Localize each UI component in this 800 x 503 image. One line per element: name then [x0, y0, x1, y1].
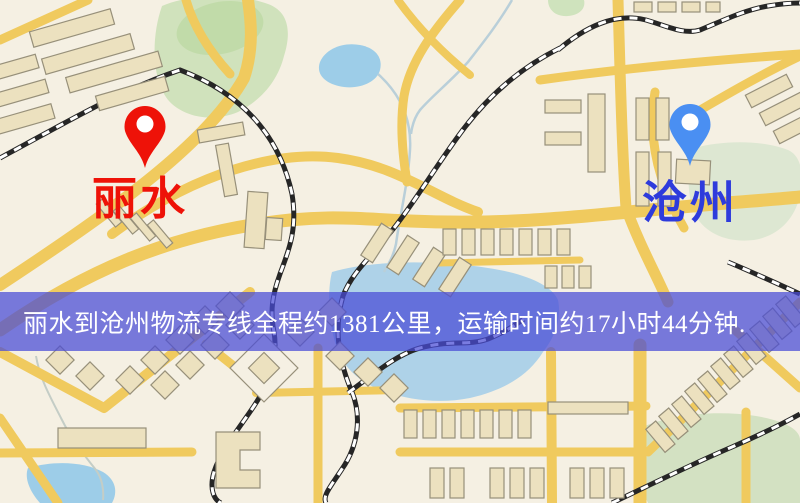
origin-pin red-location-pin-icon[interactable]	[115, 100, 175, 170]
map-screenshot: 丽水到沧州物流专线全程约1381公里，运输时间约17小时44分钟. 丽水 沧州	[0, 0, 800, 503]
route-info-text: 丽水到沧州物流专线全程约1381公里，运输时间约17小时44分钟.	[0, 304, 746, 340]
origin-city-label: 丽水	[92, 177, 188, 222]
destination-city-label: 沧州	[642, 181, 738, 226]
destination-pin blue-location-pin-icon[interactable]	[660, 98, 720, 168]
route-info-banner: 丽水到沧州物流专线全程约1381公里，运输时间约17小时44分钟.	[0, 292, 800, 351]
map-background	[0, 0, 800, 503]
